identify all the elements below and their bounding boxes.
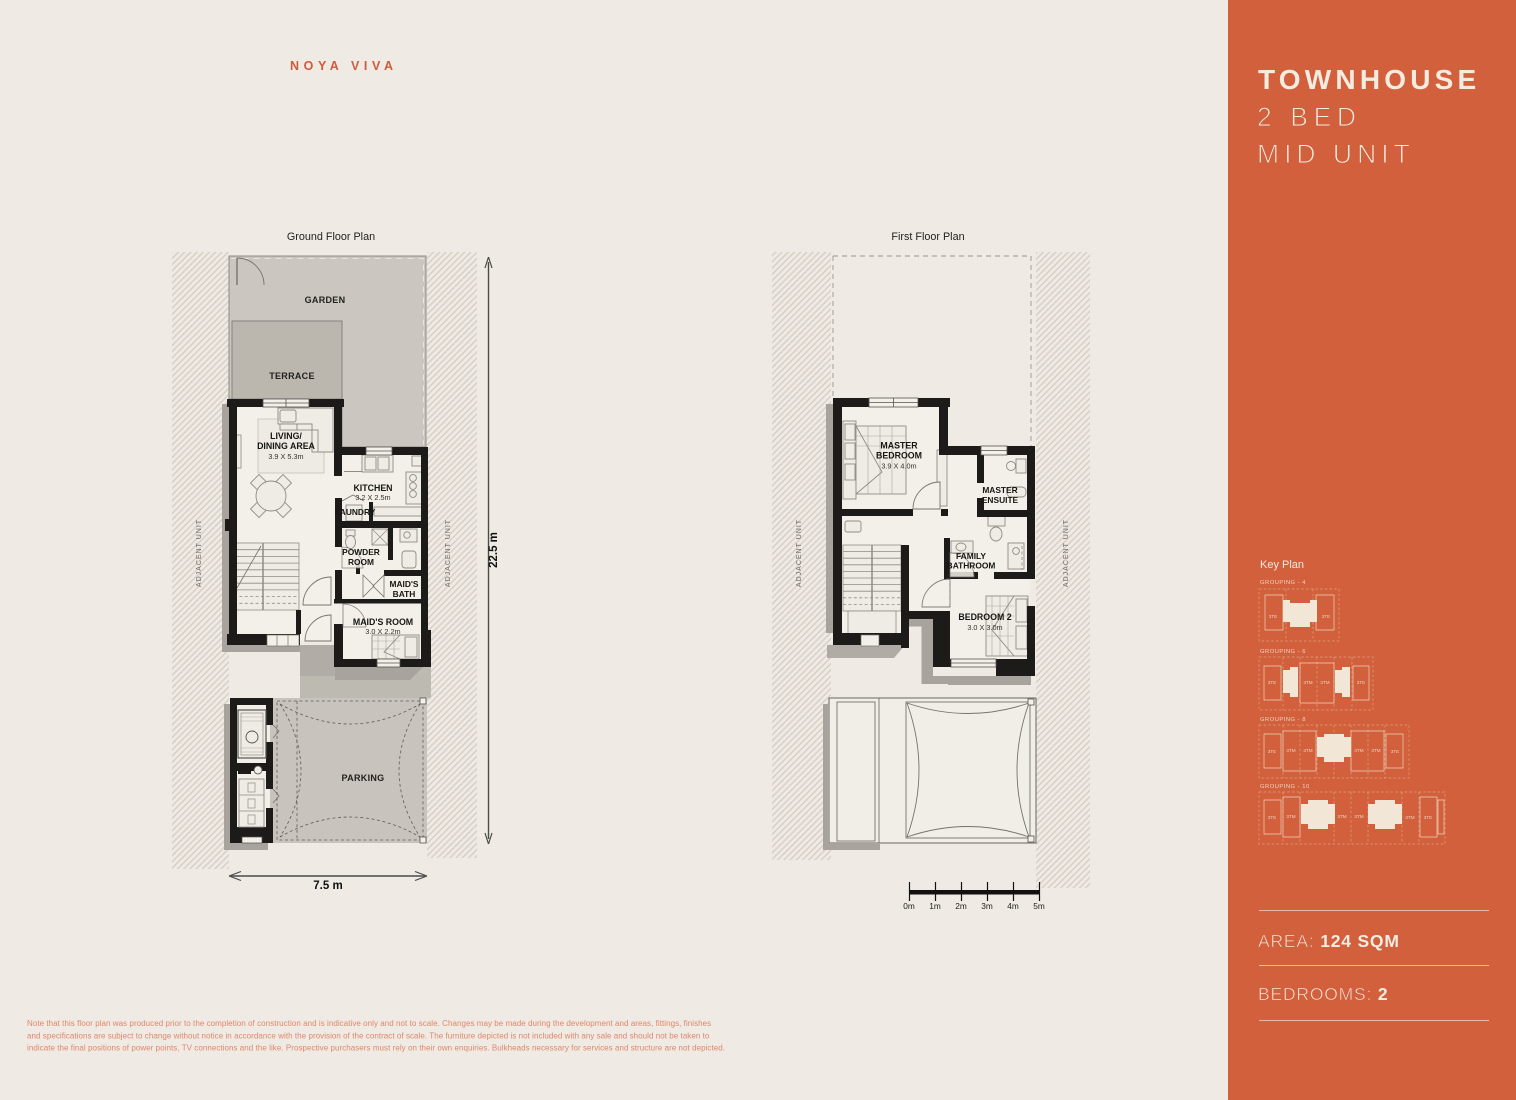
svg-text:KITCHEN: KITCHEN [353, 483, 392, 493]
svg-text:NOYA VIVA: NOYA VIVA [290, 59, 398, 73]
svg-text:3TM: 3TM [1286, 748, 1295, 753]
svg-text:3TM: 3TM [1320, 680, 1329, 685]
svg-text:TERRACE: TERRACE [269, 371, 315, 381]
svg-text:BATH: BATH [393, 589, 416, 599]
svg-text:indicate the final positions o: indicate the final positions of power po… [27, 1044, 725, 1053]
svg-text:3TE: 3TE [1424, 815, 1432, 820]
svg-text:POWDER: POWDER [342, 547, 380, 557]
svg-text:ADJACENT UNIT: ADJACENT UNIT [1063, 519, 1070, 587]
svg-text:3.0 X 3.0m: 3.0 X 3.0m [967, 623, 1002, 632]
svg-text:3TE: 3TE [1268, 815, 1276, 820]
svg-text:GROUPING - 10: GROUPING - 10 [1260, 784, 1310, 790]
svg-text:3TM: 3TM [1354, 814, 1363, 819]
svg-text:3.2 X 2.5m: 3.2 X 2.5m [355, 493, 390, 502]
svg-text:3.9 X 4.0m: 3.9 X 4.0m [881, 462, 916, 471]
svg-text:3TE: 3TE [1322, 614, 1330, 619]
svg-text:GROUPING - 6: GROUPING - 6 [1260, 649, 1306, 655]
svg-text:ADJACENT UNIT: ADJACENT UNIT [196, 519, 203, 587]
svg-text:2m: 2m [955, 901, 967, 911]
svg-text:First Floor Plan: First Floor Plan [891, 231, 964, 243]
svg-text:MID UNIT: MID UNIT [1257, 139, 1415, 169]
svg-text:AREA: 124 SQM: AREA: 124 SQM [1258, 931, 1400, 951]
svg-text:GROUPING - 4: GROUPING - 4 [1260, 580, 1306, 586]
svg-text:TOWNHOUSE: TOWNHOUSE [1258, 64, 1480, 95]
svg-text:3TE: 3TE [1357, 680, 1365, 685]
svg-text:ROOM: ROOM [348, 557, 374, 567]
svg-text:and specifications are subject: and specifications are subject to change… [27, 1031, 710, 1040]
svg-text:MAID'S ROOM: MAID'S ROOM [353, 617, 413, 627]
svg-text:FAMILY: FAMILY [956, 551, 986, 561]
svg-text:3TM: 3TM [1303, 748, 1312, 753]
svg-text:2 BED: 2 BED [1257, 102, 1362, 132]
svg-text:DINING AREA: DINING AREA [257, 441, 315, 451]
svg-text:MASTER: MASTER [880, 441, 918, 451]
svg-text:ADJACENT UNIT: ADJACENT UNIT [796, 519, 803, 587]
svg-text:3.9 X 5.3m: 3.9 X 5.3m [268, 452, 303, 461]
svg-text:GROUPING - 8: GROUPING - 8 [1260, 717, 1306, 723]
svg-text:BEDROOM: BEDROOM [876, 451, 922, 461]
svg-text:3TM: 3TM [1354, 748, 1363, 753]
svg-text:0m: 0m [903, 901, 915, 911]
svg-text:Note that this floor plan was: Note that this floor plan was produced p… [27, 1019, 711, 1028]
svg-text:3TM: 3TM [1405, 815, 1414, 820]
svg-text:3TM: 3TM [1286, 814, 1295, 819]
svg-text:7.5 m: 7.5 m [313, 880, 342, 892]
svg-text:3.0 X 2.2m: 3.0 X 2.2m [365, 627, 400, 636]
svg-text:3TE: 3TE [1268, 749, 1276, 754]
svg-text:3TM: 3TM [1337, 814, 1346, 819]
svg-text:LAUNDRY: LAUNDRY [335, 507, 376, 517]
svg-text:Key Plan: Key Plan [1260, 559, 1304, 571]
svg-text:4m: 4m [1007, 901, 1019, 911]
svg-text:3TE: 3TE [1269, 614, 1277, 619]
svg-text:MAID'S: MAID'S [390, 579, 419, 589]
svg-text:BEDROOMS: 2: BEDROOMS: 2 [1258, 984, 1388, 1004]
svg-text:Ground Floor Plan: Ground Floor Plan [287, 231, 375, 243]
svg-text:ENSUITE: ENSUITE [982, 495, 1019, 505]
svg-text:3TE: 3TE [1391, 749, 1399, 754]
svg-text:MASTER: MASTER [982, 485, 1017, 495]
svg-text:BEDROOM 2: BEDROOM 2 [958, 612, 1011, 622]
svg-text:3TM: 3TM [1303, 680, 1312, 685]
svg-text:1m: 1m [929, 901, 941, 911]
svg-text:3m: 3m [981, 901, 993, 911]
svg-text:3TE: 3TE [1268, 680, 1276, 685]
svg-text:PARKING: PARKING [342, 773, 385, 783]
svg-text:BATHROOM: BATHROOM [947, 561, 996, 571]
svg-text:GARDEN: GARDEN [305, 295, 346, 305]
svg-text:ADJACENT UNIT: ADJACENT UNIT [445, 519, 452, 587]
svg-text:LIVING/: LIVING/ [270, 431, 302, 441]
svg-text:5m: 5m [1033, 901, 1045, 911]
svg-text:22.5 m: 22.5 m [488, 532, 500, 568]
svg-text:3TM: 3TM [1371, 748, 1380, 753]
